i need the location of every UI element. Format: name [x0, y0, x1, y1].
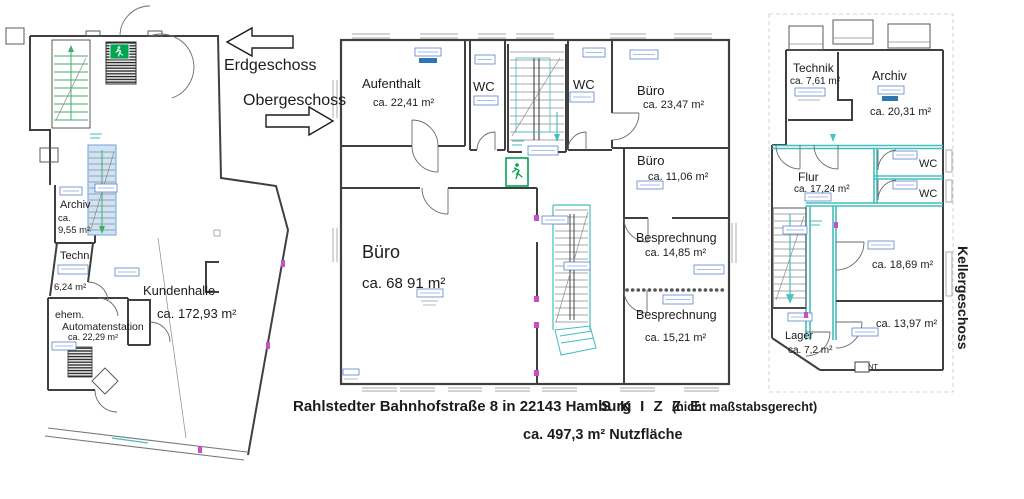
kg-room-wc-unten-label: WC [919, 188, 937, 200]
footer-skizze-note: (nicht maßstabsgerecht) [672, 400, 817, 414]
kg-stair [773, 208, 822, 308]
kg-room-klein-area: ca. 13,97 m² [876, 318, 937, 330]
og-room-wc-left-label: WC [473, 79, 495, 94]
kg-flow-arrow [830, 134, 836, 142]
og-room-aufenthalt-area: ca. 22,41 m² [373, 97, 434, 109]
kg-room-flur-label: Flur [798, 170, 819, 184]
og-room-aufenthalt-label: Aufenthalt [362, 76, 421, 91]
obergeschoss-label: Obergeschoss [243, 92, 346, 109]
og-room-buero-gross-area: ca. 68 91 m² [362, 275, 445, 292]
eg-room-archiv-area-2: 9,55 m² [58, 225, 90, 236]
erdgeschoss-arrow-icon [227, 28, 293, 56]
kg-nt-label: NT [868, 362, 878, 371]
kg-room-technik-label: Technik [793, 61, 835, 75]
og-stair-main [508, 44, 566, 152]
eg-room-automatenstation-label-1: ehem. [55, 309, 84, 321]
kg-room-lager-label: Lager [785, 330, 813, 342]
floor-plan-sheet: Archiv ca. 9,55 m² Techn. 6,24 m² Kunden… [0, 0, 1024, 499]
eg-exit-sign-icon [110, 44, 129, 59]
kg-room-archiv-area: ca. 20,31 m² [870, 106, 931, 118]
footer-address: Rahlstedter Bahnhofstraße 8 in 22143 Ham… [293, 398, 631, 415]
kg-room-wc-oben-label: WC [919, 158, 937, 170]
eg-room-archiv-area-1: ca. [58, 213, 71, 224]
eg-room-kundenhalle-label: Kundenhalle [143, 283, 215, 298]
og-stair-lower [553, 205, 596, 355]
eg-room-kundenhalle-area: ca. 172,93 m² [157, 306, 237, 321]
eg-stair-hatched [106, 42, 136, 84]
kg-room-code-boxes [783, 86, 917, 336]
og-room-besprechung2-area: ca. 15,21 m² [645, 332, 706, 344]
eg-room-archiv-label: Archiv [60, 199, 91, 211]
footer-total-area: ca. 497,3 m² Nutzfläche [523, 427, 683, 443]
og-room-besprechung1-area: ca. 14,85 m² [645, 247, 706, 259]
kg-room-gross-area: ca. 18,69 m² [872, 259, 933, 271]
og-room-buero-klein-area: ca. 11,06 m² [648, 171, 709, 183]
og-exit-sign-icon [506, 158, 528, 186]
eg-room-automatenstation-area: ca. 22,29 m² [68, 332, 118, 342]
eg-room-technik-label: Techn. [60, 250, 92, 262]
og-room-buero-oben-label: Büro [637, 83, 664, 98]
og-room-besprechung1-label: Besprechnung [636, 231, 717, 245]
og-room-buero-klein-label: Büro [637, 153, 664, 168]
erdgeschoss-label: Erdgeschoss [224, 57, 317, 74]
kg-room-technik-area: ca. 7,61 m² [790, 76, 841, 87]
og-room-wc-right-label: WC [573, 77, 595, 92]
obergeschoss-arrow-icon [266, 107, 333, 135]
kg-room-flur-area: ca. 17,24 m² [794, 184, 850, 195]
eg-entrance-diamond [92, 368, 118, 394]
plan-canvas: Archiv ca. 9,55 m² Techn. 6,24 m² Kunden… [0, 0, 1024, 499]
kellergeschoss-label: Kellergeschoss [955, 246, 971, 350]
floor-plan-erdgeschoss: Archiv ca. 9,55 m² Techn. 6,24 m² Kunden… [6, 6, 288, 460]
og-room-buero-gross-label: Büro [362, 242, 400, 262]
eg-hatch-small [68, 347, 92, 377]
eg-facade-band [45, 428, 247, 460]
eg-annex [6, 28, 24, 44]
sheet-footer: Rahlstedter Bahnhofstraße 8 in 22143 Ham… [293, 398, 817, 443]
og-room-besprechung2-label: Besprechnung [636, 308, 717, 322]
og-aufenthalt-walls [341, 40, 465, 146]
kg-bottom-door [855, 362, 869, 372]
floor-plan-kellergeschoss: Technik ca. 7,61 m² Archiv ca. 20,31 m² … [769, 14, 953, 392]
kg-room-archiv-label: Archiv [872, 69, 907, 83]
floor-plan-obergeschoss: Aufenthalt ca. 22,41 m² WC WC Büro ca. 2… [333, 34, 736, 391]
kg-room-lager-area: ca. 7,2 m² [788, 345, 833, 356]
eg-stair-green [52, 40, 90, 128]
eg-room-technik-area: 6,24 m² [54, 282, 86, 293]
og-room-buero-oben-area: ca. 23,47 m² [643, 99, 704, 111]
